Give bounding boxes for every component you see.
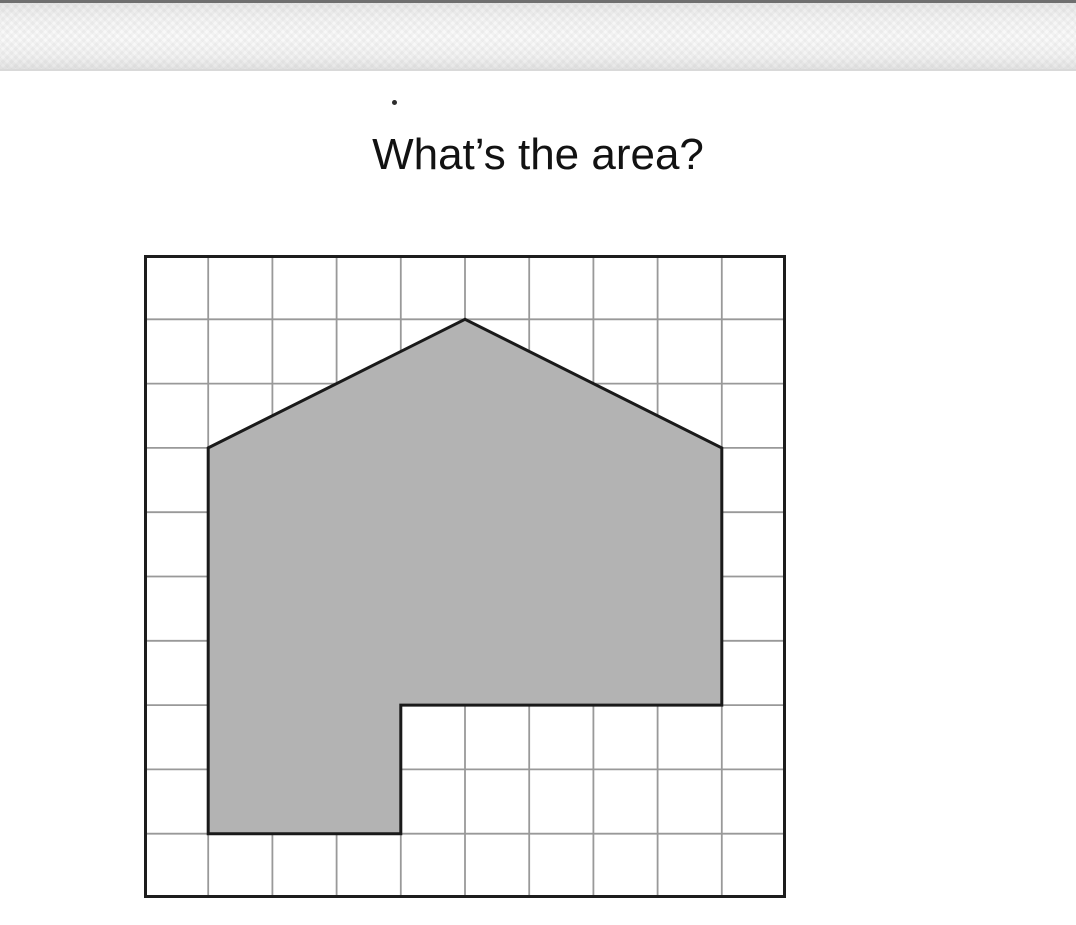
window-toolbar — [0, 0, 1076, 71]
stray-dot — [392, 100, 397, 105]
page-title: What’s the area? — [0, 131, 1076, 179]
grid-figure-container — [144, 255, 786, 898]
grid-figure — [144, 255, 786, 898]
